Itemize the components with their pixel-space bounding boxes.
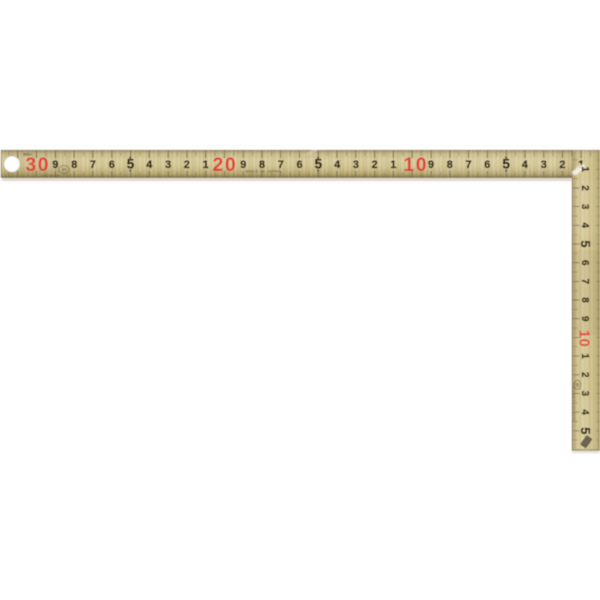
svg-text:4: 4	[146, 159, 152, 171]
svg-text:9: 9	[428, 159, 434, 171]
svg-text:3: 3	[541, 159, 547, 171]
svg-text:7: 7	[90, 159, 96, 171]
svg-text:6: 6	[296, 159, 302, 171]
svg-text:9: 9	[579, 316, 590, 322]
svg-text:2: 2	[372, 159, 378, 171]
svg-text:10: 10	[575, 330, 591, 347]
svg-text:7: 7	[579, 279, 590, 285]
svg-text:2: 2	[579, 372, 590, 378]
svg-text:3: 3	[579, 204, 590, 210]
svg-text:4: 4	[579, 409, 590, 415]
svg-text:8: 8	[71, 159, 77, 171]
svg-text:3: 3	[579, 391, 590, 397]
svg-text:20: 20	[213, 154, 238, 176]
svg-text:MADE IN JAPAN: MADE IN JAPAN	[246, 170, 281, 174]
svg-text:8: 8	[579, 297, 590, 303]
svg-text:5: 5	[578, 427, 593, 434]
svg-text:2: 2	[579, 185, 590, 191]
svg-text:2: 2	[184, 159, 190, 171]
svg-text:5: 5	[578, 240, 593, 247]
svg-text:4: 4	[334, 159, 340, 171]
svg-text:1: 1	[579, 353, 590, 359]
svg-text:6: 6	[579, 260, 590, 266]
svg-text:2: 2	[559, 159, 565, 171]
svg-text:30cm: 30cm	[23, 152, 32, 156]
svg-text:8: 8	[447, 159, 453, 171]
svg-text:30: 30	[61, 167, 67, 172]
svg-text:1: 1	[203, 159, 209, 171]
svg-text:JIS1.SHINWA: JIS1.SHINWA	[41, 174, 61, 178]
svg-text:6: 6	[109, 159, 115, 171]
svg-text:9: 9	[52, 159, 58, 171]
svg-text:4: 4	[579, 223, 590, 229]
svg-text:10: 10	[403, 154, 428, 176]
svg-text:3: 3	[165, 159, 171, 171]
svg-text:SHINWA RULES JAPAN: SHINWA RULES JAPAN	[572, 386, 576, 422]
svg-text:3: 3	[353, 159, 359, 171]
svg-text:1: 1	[390, 159, 396, 171]
svg-text:7: 7	[465, 159, 471, 171]
svg-text:4: 4	[522, 159, 528, 171]
svg-text:30: 30	[25, 154, 50, 176]
svg-text:6: 6	[484, 159, 490, 171]
svg-text:1: 1	[579, 167, 590, 173]
